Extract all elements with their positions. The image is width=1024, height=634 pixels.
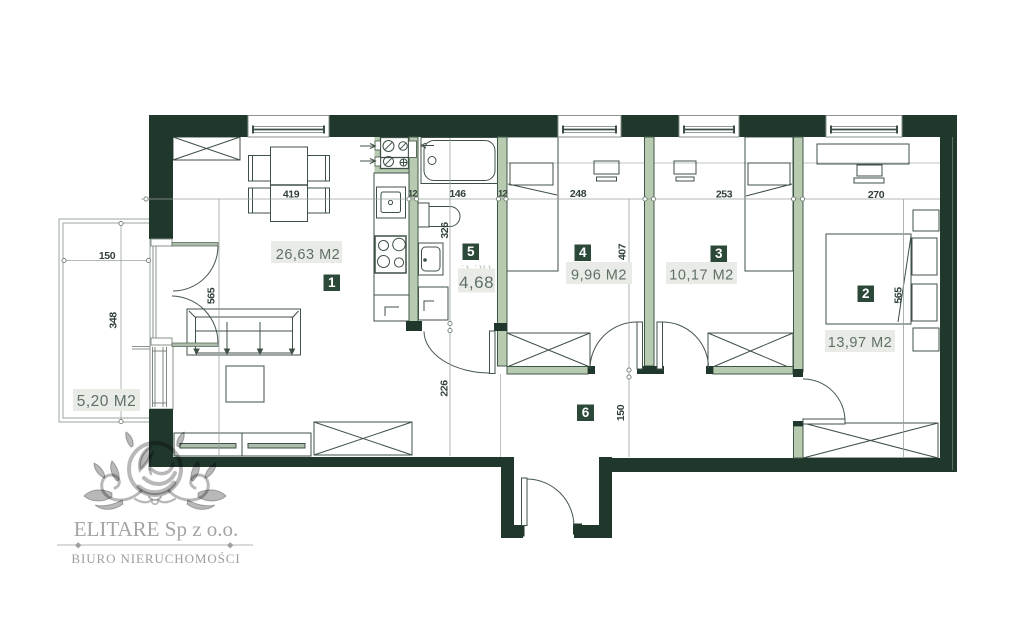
- svg-text:150: 150: [99, 250, 116, 262]
- svg-text:4: 4: [579, 245, 587, 260]
- svg-text:2: 2: [862, 286, 870, 301]
- svg-text:1: 1: [328, 275, 336, 290]
- svg-text:3: 3: [715, 246, 723, 261]
- svg-text:565: 565: [893, 287, 905, 304]
- svg-text:BIURO NIERUCHOMOŚCI: BIURO NIERUCHOMOŚCI: [71, 551, 240, 566]
- svg-text:13,97 M2: 13,97 M2: [828, 335, 892, 351]
- svg-text:12: 12: [408, 189, 417, 199]
- svg-text:326: 326: [439, 222, 451, 239]
- svg-text:5,20 M2: 5,20 M2: [77, 393, 137, 410]
- svg-text:26,63 M2: 26,63 M2: [276, 247, 340, 263]
- svg-text:ELITARE Sp z o.o.: ELITARE Sp z o.o.: [74, 517, 239, 541]
- svg-text:407: 407: [617, 243, 629, 260]
- svg-text:12: 12: [498, 189, 507, 199]
- svg-text:270: 270: [868, 189, 885, 201]
- svg-text:10,17 M2: 10,17 M2: [669, 268, 733, 284]
- svg-text:253: 253: [716, 189, 733, 201]
- svg-text:4,68: 4,68: [459, 273, 494, 292]
- svg-text:348: 348: [108, 312, 120, 329]
- svg-text:419: 419: [283, 189, 300, 201]
- svg-text:248: 248: [570, 188, 587, 200]
- svg-text:6: 6: [582, 405, 590, 420]
- svg-text:9,96 M2: 9,96 M2: [571, 268, 627, 284]
- svg-text:565: 565: [206, 287, 218, 304]
- svg-text:5: 5: [467, 244, 475, 259]
- svg-text:226: 226: [439, 380, 451, 397]
- svg-text:146: 146: [449, 188, 466, 200]
- svg-text:150: 150: [615, 404, 627, 421]
